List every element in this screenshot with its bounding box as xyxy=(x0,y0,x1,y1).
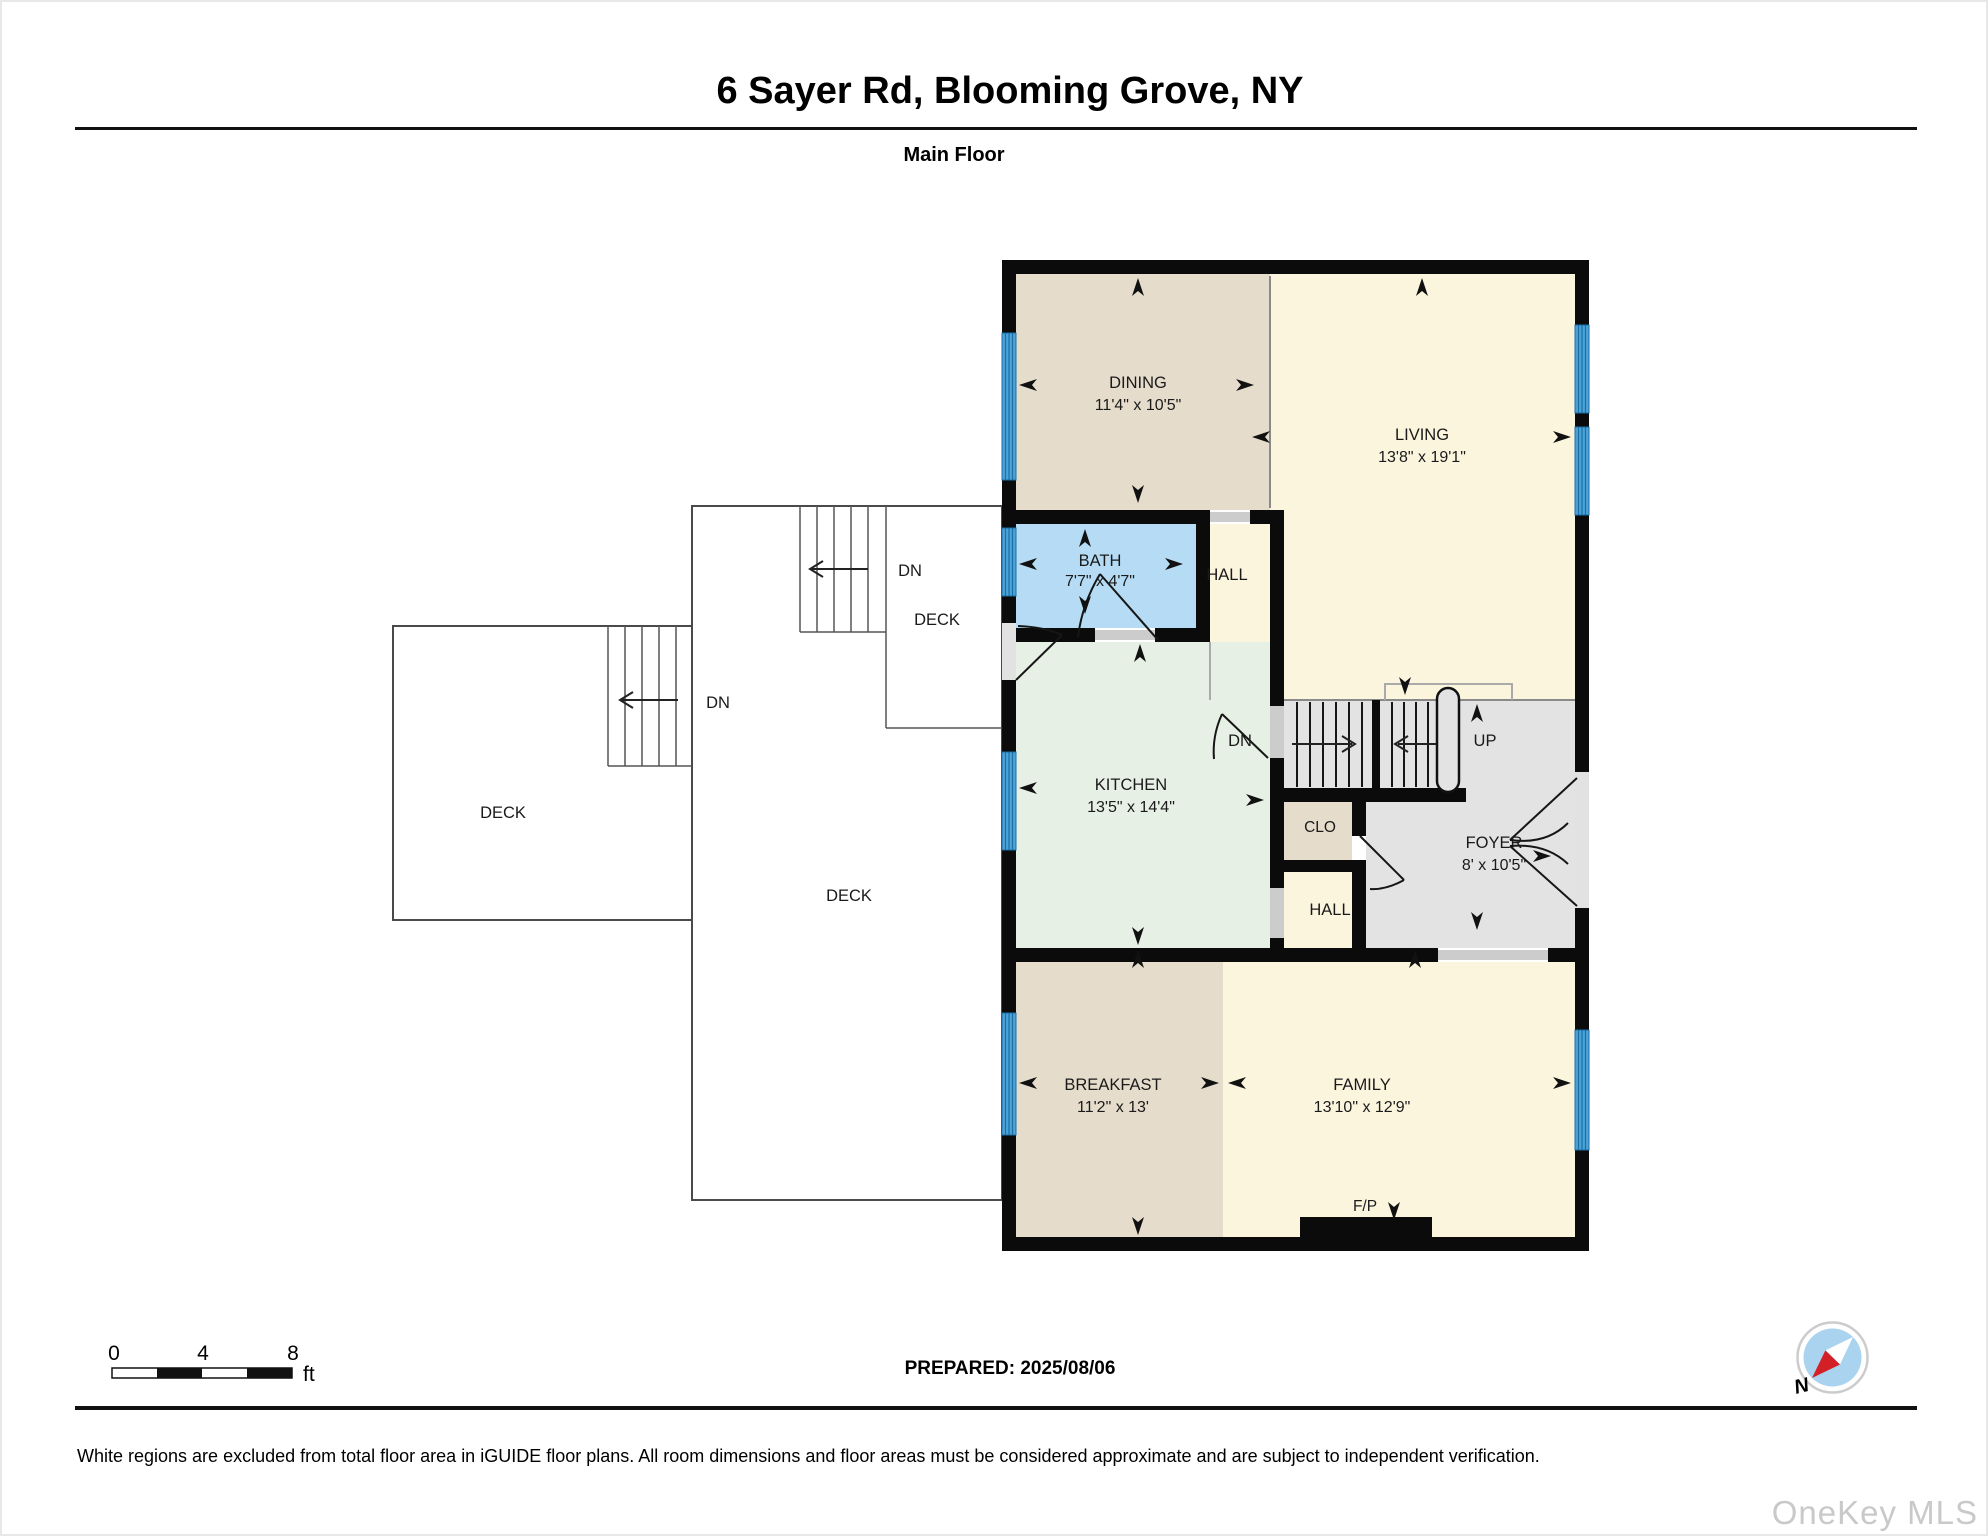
dims-breakfast: 11'2" x 13' xyxy=(1077,1099,1149,1116)
label-dining: DINING xyxy=(1109,374,1167,392)
scale-unit: ft xyxy=(303,1363,315,1386)
kitchen-deck-door-opening xyxy=(1002,623,1016,680)
dims-bath: 7'7" x 4'7" xyxy=(1065,573,1135,590)
floor-plan-drawing: DINING 11'4" x 10'5" LIVING 13'8" x 19'1… xyxy=(0,0,1988,1536)
label-deck-center: DECK xyxy=(826,887,872,905)
scale-tick-4: 4 xyxy=(197,1342,209,1365)
stair-railing xyxy=(1437,688,1459,792)
window-living-2 xyxy=(1575,427,1589,515)
watermark: OneKey MLS xyxy=(1772,1494,1978,1532)
label-hall-upper: HALL xyxy=(1206,566,1247,584)
room-dining xyxy=(1016,274,1270,510)
dims-kitchen: 13'5" x 14'4" xyxy=(1087,799,1175,816)
scale-bar: 0 4 8 ft xyxy=(108,1342,315,1386)
window-family xyxy=(1575,1030,1589,1150)
window-dining xyxy=(1002,333,1016,480)
label-fireplace: F/P xyxy=(1353,1198,1377,1215)
label-family: FAMILY xyxy=(1333,1076,1390,1094)
label-kitchen: KITCHEN xyxy=(1095,776,1167,794)
label-clo: CLO xyxy=(1304,819,1336,836)
room-living xyxy=(1270,274,1575,700)
label-dn-deck-left: DN xyxy=(706,694,730,712)
label-bath: BATH xyxy=(1079,552,1122,570)
front-door-opening xyxy=(1575,772,1589,908)
compass-icon: N xyxy=(1792,1323,1868,1399)
label-breakfast: BREAKFAST xyxy=(1064,1076,1161,1094)
prepared-date: PREPARED: 2025/08/06 xyxy=(905,1358,1116,1380)
footer-rule xyxy=(75,1406,1917,1410)
label-foyer: FOYER xyxy=(1466,834,1523,852)
label-deck-upper: DECK xyxy=(914,611,960,629)
fireplace xyxy=(1300,1217,1432,1237)
label-dn-deck-upper: DN xyxy=(898,562,922,580)
label-hall-lower: HALL xyxy=(1309,901,1350,919)
window-breakfast xyxy=(1002,1013,1016,1135)
dims-family: 13'10" x 12'9" xyxy=(1314,1099,1411,1116)
dims-living: 13'8" x 19'1" xyxy=(1378,449,1466,466)
room-foyer-upper xyxy=(1466,700,1575,802)
scale-tick-8: 8 xyxy=(287,1342,299,1365)
window-bath xyxy=(1002,528,1016,596)
window-kitchen xyxy=(1002,752,1016,850)
label-deck-left: DECK xyxy=(480,804,526,822)
room-kitchen xyxy=(1016,642,1270,948)
dims-foyer: 8' x 10'5" xyxy=(1462,857,1526,874)
scale-tick-0: 0 xyxy=(108,1342,120,1365)
label-living: LIVING xyxy=(1395,426,1449,444)
floor-plan-page: 6 Sayer Rd, Blooming Grove, NY Main Floo… xyxy=(0,0,1988,1536)
dims-dining: 11'4" x 10'5" xyxy=(1095,397,1182,414)
label-up-interior: UP xyxy=(1474,732,1497,750)
deck-left xyxy=(393,626,692,920)
label-dn-interior: DN xyxy=(1228,732,1252,750)
disclaimer-text: White regions are excluded from total fl… xyxy=(77,1446,1540,1467)
window-living-1 xyxy=(1575,325,1589,413)
